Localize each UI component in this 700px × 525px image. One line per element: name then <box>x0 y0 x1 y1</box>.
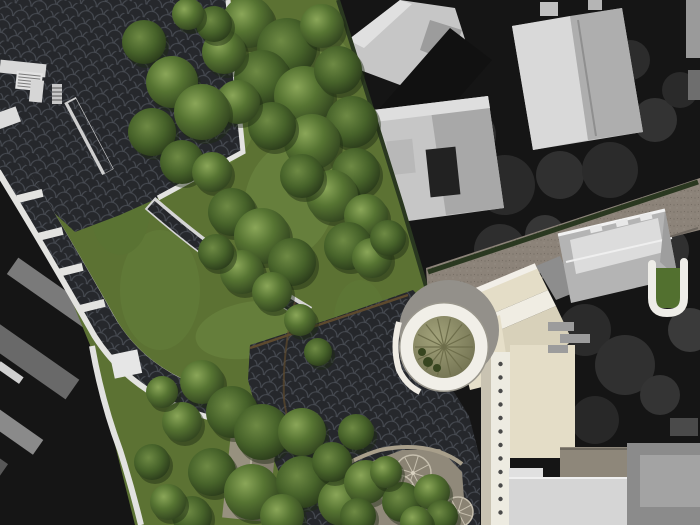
tree <box>304 338 332 366</box>
tree <box>284 304 316 336</box>
tree <box>370 220 406 256</box>
column-dot <box>498 470 502 474</box>
column-dot <box>498 402 502 406</box>
column-dot <box>498 443 502 447</box>
tree <box>300 4 344 48</box>
tree <box>314 46 362 94</box>
column-dot <box>498 362 502 366</box>
tree <box>252 272 292 312</box>
column-dot <box>498 497 502 501</box>
tree <box>134 444 170 480</box>
slab-right-face <box>640 455 700 507</box>
tree <box>174 84 230 140</box>
tree <box>370 456 402 488</box>
tree <box>338 414 374 450</box>
column-dot <box>498 389 502 393</box>
ladder <box>52 84 62 104</box>
courtyard-wall <box>510 345 575 458</box>
tree <box>146 376 178 408</box>
courtyard-green <box>655 268 681 308</box>
slab-big-light <box>509 477 643 525</box>
tree <box>198 234 234 270</box>
column-dot <box>498 483 502 487</box>
colonnade-walk <box>481 352 491 525</box>
tree <box>280 154 324 198</box>
courtyard-u-path <box>652 262 684 313</box>
site-plan-image <box>0 0 700 525</box>
column-dot <box>498 416 502 420</box>
column-dot <box>498 429 502 433</box>
tree <box>192 152 232 192</box>
column-dot <box>498 456 502 460</box>
tree <box>122 20 166 64</box>
tree <box>150 484 186 520</box>
column-dot <box>498 375 502 379</box>
tan-band <box>560 447 627 477</box>
slab-step <box>509 468 543 478</box>
site-plan-canvas <box>0 0 700 525</box>
carousel-hub <box>411 471 415 475</box>
column-dot <box>498 510 502 514</box>
